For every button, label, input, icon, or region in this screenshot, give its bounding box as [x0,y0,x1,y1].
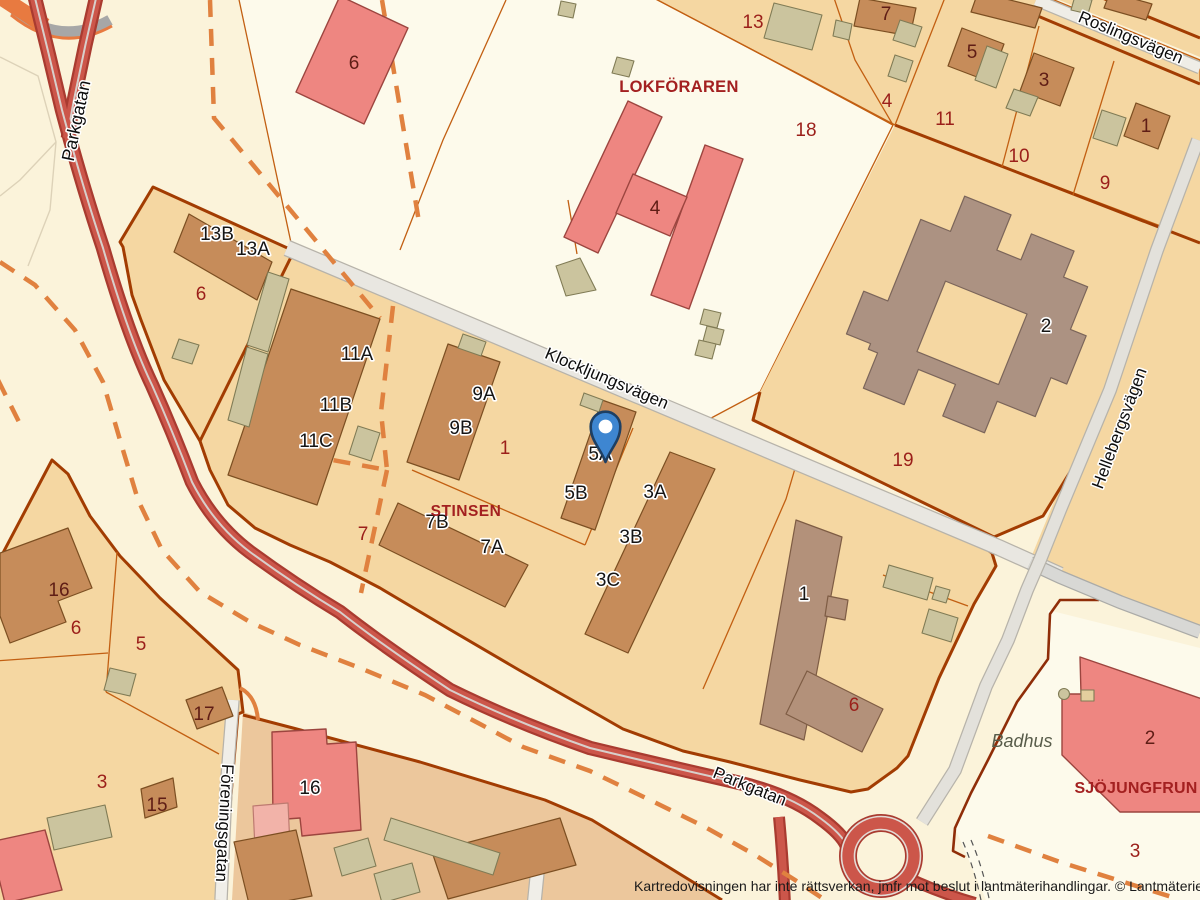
svg-text:15: 15 [146,795,167,816]
svg-text:13A: 13A [236,239,270,260]
svg-text:6: 6 [196,284,207,305]
svg-text:9A: 9A [472,384,496,405]
svg-text:3: 3 [1039,70,1050,91]
svg-text:6: 6 [349,53,360,74]
svg-text:Badhus: Badhus [991,731,1052,751]
svg-text:3: 3 [97,772,108,793]
svg-text:9: 9 [1100,173,1111,194]
svg-text:1: 1 [799,584,810,605]
svg-text:2: 2 [1145,728,1156,749]
svg-text:11C: 11C [299,431,332,452]
svg-text:4: 4 [882,91,893,112]
svg-text:1: 1 [500,438,511,459]
svg-text:2: 2 [1041,316,1052,337]
svg-text:6: 6 [71,618,82,639]
svg-text:3A: 3A [643,482,667,503]
svg-text:16: 16 [299,778,320,799]
svg-text:9B: 9B [449,418,472,439]
svg-text:LOKFÖRAREN: LOKFÖRAREN [619,77,738,96]
svg-text:STINSEN: STINSEN [431,503,502,520]
svg-text:7: 7 [358,524,369,545]
svg-text:5: 5 [136,634,147,655]
svg-text:Kartredovisningen har inte rät: Kartredovisningen har inte rättsverkan, … [634,878,1200,894]
svg-text:7A: 7A [480,537,504,558]
svg-text:3B: 3B [619,527,642,548]
svg-text:11A: 11A [341,344,374,365]
svg-text:SJÖJUNGFRUN: SJÖJUNGFRUN [1074,778,1197,797]
svg-text:13B: 13B [200,224,234,245]
svg-text:16: 16 [48,580,69,601]
svg-text:6: 6 [849,695,860,716]
svg-text:4: 4 [650,198,661,219]
svg-text:5: 5 [967,42,978,63]
svg-text:18: 18 [795,120,816,141]
svg-text:11: 11 [935,109,955,130]
svg-text:13: 13 [742,12,763,33]
svg-text:11B: 11B [320,395,352,416]
svg-text:17: 17 [193,704,214,725]
svg-text:3: 3 [1130,841,1141,862]
svg-text:1: 1 [1141,116,1152,137]
svg-text:3C: 3C [596,570,620,591]
svg-text:5B: 5B [564,483,587,504]
svg-text:19: 19 [892,450,913,471]
svg-text:7: 7 [881,4,892,25]
svg-text:10: 10 [1008,146,1029,167]
